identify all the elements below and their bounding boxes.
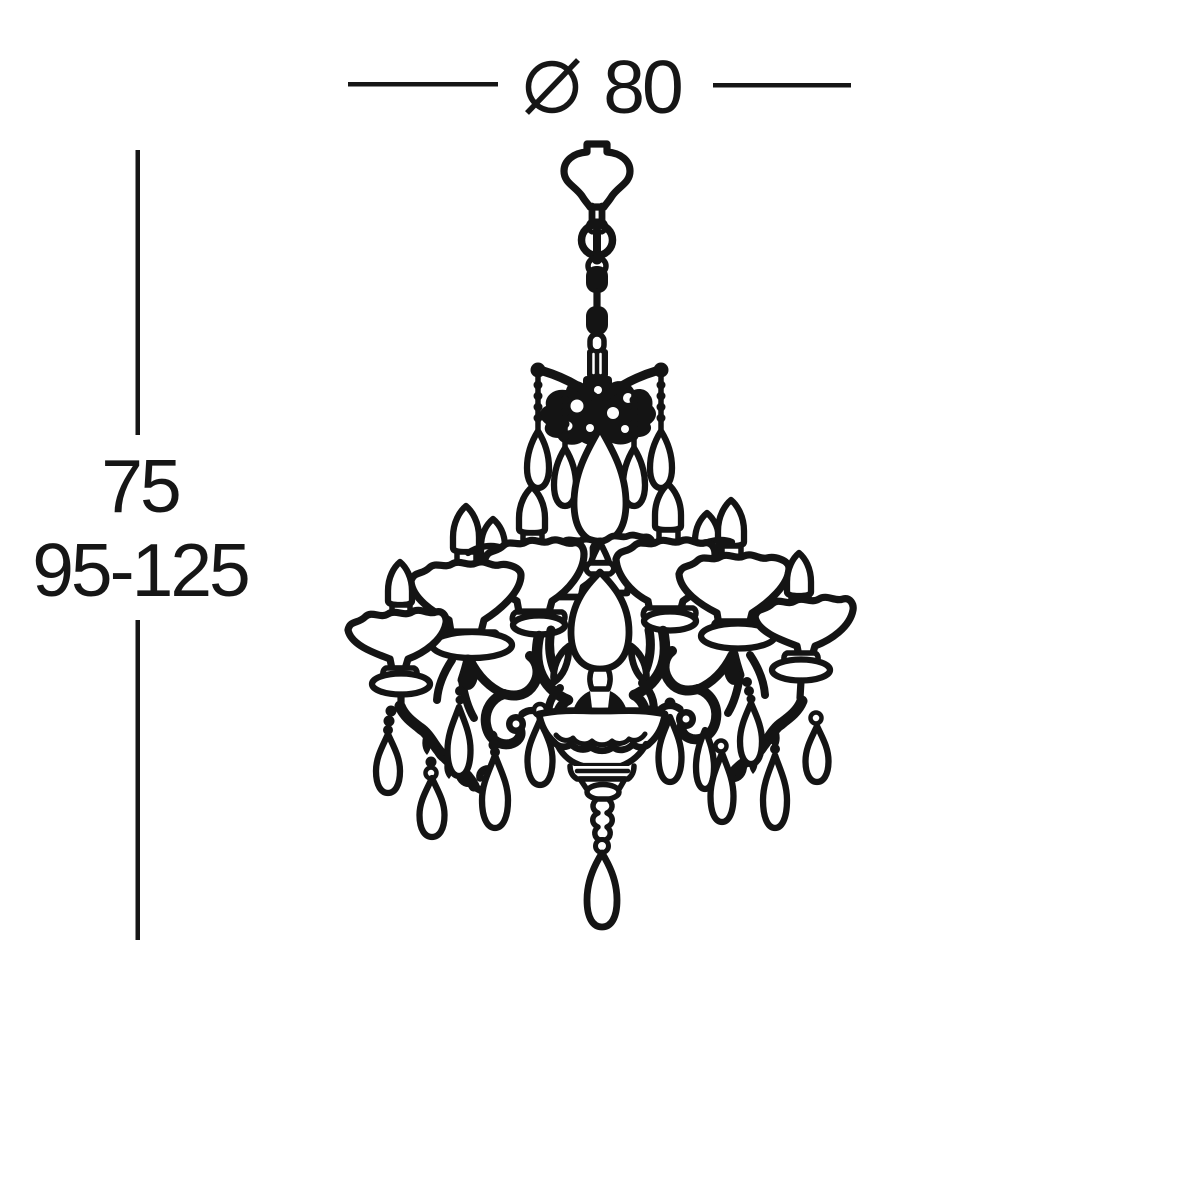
svg-text:75: 75 [101, 444, 179, 528]
svg-text:80: 80 [603, 45, 681, 129]
svg-text:95-125: 95-125 [32, 528, 248, 612]
